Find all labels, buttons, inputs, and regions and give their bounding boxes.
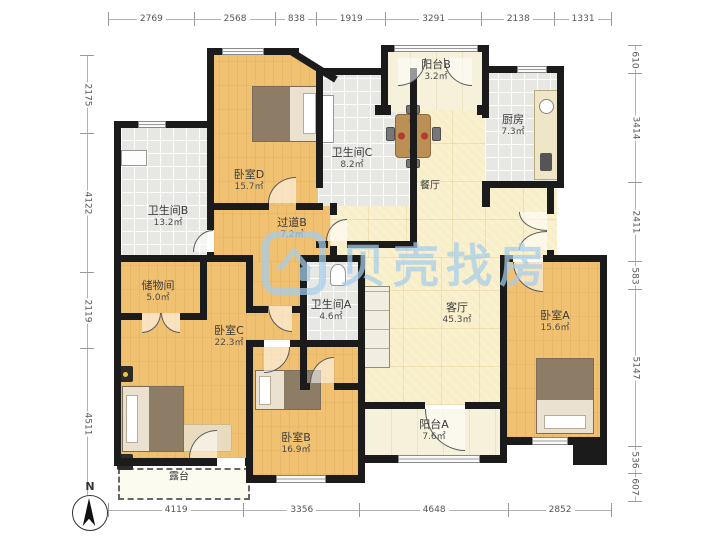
wall <box>114 458 217 466</box>
room-floor-hallway-b <box>214 206 330 262</box>
wall <box>200 255 207 320</box>
dining-chair-furniture <box>386 127 395 141</box>
room-label-dining: 餐厅 <box>420 180 440 193</box>
dimension-segment: 2769 <box>108 12 194 26</box>
window <box>532 437 568 445</box>
room-label-bathroom-a: 卫生间A4.6㎡ <box>311 298 352 324</box>
dimension-segment: 2852 <box>508 503 612 517</box>
wall <box>347 241 413 248</box>
window <box>398 455 480 463</box>
wall <box>358 402 425 409</box>
dimension-label: 3356 <box>287 505 316 515</box>
dimension-label: 4648 <box>420 505 449 515</box>
compass-north-label: N <box>68 480 112 493</box>
dimension-label: 2119 <box>82 298 92 323</box>
room-label-hallway-b: 过道B7.2㎡ <box>277 216 307 242</box>
dimension-label: 2175 <box>82 82 92 107</box>
wall <box>547 181 554 214</box>
wall <box>326 475 365 483</box>
room-name: 厨房 <box>501 113 524 127</box>
window <box>394 45 478 52</box>
wall <box>573 437 607 465</box>
double-bed-furniture <box>252 86 320 142</box>
room-area: 45.3㎡ <box>442 315 471 327</box>
floor-plan-canvas: 贝壳找房 N 卧室D15.7㎡卫生间C8.2㎡阳台B3.2㎡厨房7.3㎡餐厅过道… <box>0 0 720 540</box>
room-area: 13.2㎡ <box>148 218 189 230</box>
dimension-label: 5147 <box>630 356 640 381</box>
room-label-bedroom-a: 卧室A15.6㎡ <box>540 309 570 335</box>
room-label-living: 客厅45.3㎡ <box>442 301 471 327</box>
wall <box>316 68 323 188</box>
wall <box>246 258 253 306</box>
wall <box>207 203 269 210</box>
room-area: 22.3㎡ <box>214 338 244 350</box>
wall <box>290 340 365 347</box>
window <box>222 48 264 55</box>
dimension-segment: 1331 <box>554 12 612 26</box>
dimension-label: 3291 <box>419 14 448 24</box>
room-label-terrace: 露台 <box>169 471 189 484</box>
dimension-segment: 2411 <box>628 182 642 262</box>
wall <box>547 250 554 262</box>
wall <box>330 246 337 258</box>
wall <box>292 306 307 313</box>
sofa-furniture <box>362 286 390 368</box>
room-name: 卧室D <box>234 168 264 182</box>
dimension-label: 1919 <box>337 14 366 24</box>
dimension-label: 4122 <box>82 191 92 216</box>
dining-chair-furniture <box>432 127 441 141</box>
room-name: 卧室B <box>281 431 311 445</box>
dimension-segment: 3291 <box>385 12 481 26</box>
dimension-segment: 4119 <box>108 503 243 517</box>
wall <box>500 437 533 445</box>
room-name: 阳台A <box>419 418 449 432</box>
compass-needle-icon <box>77 498 101 526</box>
room-area: 15.6㎡ <box>540 323 570 335</box>
room-name: 露台 <box>169 471 189 484</box>
room-name: 卫生间B <box>148 204 189 218</box>
room-name: 餐厅 <box>420 180 440 193</box>
dimension-label: 4119 <box>162 505 191 515</box>
room-label-storage: 储物间5.0㎡ <box>142 279 175 305</box>
room-label-bedroom-b: 卧室B16.9㎡ <box>281 431 311 457</box>
room-area: 3.2㎡ <box>421 72 451 84</box>
room-area: 7.2㎡ <box>277 230 307 242</box>
dimension-label: 3414 <box>630 116 640 141</box>
wall <box>114 121 121 465</box>
room-label-bathroom-b: 卫生间B13.2㎡ <box>148 204 189 230</box>
dimension-segment: 1919 <box>316 12 385 26</box>
wall <box>358 455 400 463</box>
wall <box>296 203 323 210</box>
room-name: 卫生间C <box>332 146 373 160</box>
wall <box>246 475 280 483</box>
wall <box>482 181 490 207</box>
compass-dial <box>72 495 108 531</box>
wall <box>246 340 253 482</box>
dimension-segment: 5147 <box>628 289 642 447</box>
kitchen-counter-furniture <box>534 90 558 180</box>
dimension-segment: 2119 <box>80 272 94 349</box>
wall <box>410 68 417 248</box>
wall <box>114 313 142 320</box>
dimension-ruler-bottom: 4119335646482852 <box>108 503 612 517</box>
dimension-segment: 3414 <box>628 73 642 181</box>
wall <box>477 105 489 115</box>
dimension-segment: 610 <box>628 45 642 73</box>
window <box>138 121 166 128</box>
dimension-ruler-top: 276925688381919329121381331 <box>108 12 612 26</box>
room-label-balcony-b: 阳台B3.2㎡ <box>421 58 451 84</box>
room-name: 过道B <box>277 216 307 230</box>
dimension-label: 1331 <box>569 14 598 24</box>
room-area: 16.9㎡ <box>281 445 311 457</box>
room-floor-bathroom-b <box>121 128 207 258</box>
dimension-label: 610 <box>630 50 640 69</box>
wall <box>358 255 365 482</box>
dimension-segment: 3356 <box>243 503 359 517</box>
dimension-segment: 4511 <box>80 348 94 500</box>
dimension-label: 2568 <box>221 14 250 24</box>
wall <box>300 383 310 390</box>
room-label-bedroom-c: 卧室C22.3㎡ <box>214 324 244 350</box>
room-name: 客厅 <box>442 301 471 315</box>
dimension-label: 4511 <box>82 412 92 437</box>
window <box>276 475 326 483</box>
wall-shelf-furniture <box>121 150 147 166</box>
wall <box>114 255 210 262</box>
wall <box>330 203 337 215</box>
room-area: 7.6㎡ <box>419 432 449 444</box>
dimension-label: 2769 <box>137 14 166 24</box>
room-label-bathroom-c: 卫生间C8.2㎡ <box>332 146 373 172</box>
wall <box>500 255 507 463</box>
dimension-ruler-left: 2175412221194511 <box>80 55 94 500</box>
wall <box>246 340 264 347</box>
dimension-label: 536 <box>630 450 640 469</box>
compass: N <box>68 480 112 538</box>
dimension-segment: 838 <box>275 12 316 26</box>
wall <box>600 255 607 445</box>
dimension-segment: 583 <box>628 261 642 289</box>
toilet-furniture <box>330 264 346 286</box>
wall <box>246 306 268 313</box>
wall <box>375 105 391 115</box>
dimension-segment: 2175 <box>80 55 94 133</box>
dimension-label: 2411 <box>630 209 640 234</box>
dimension-segment: 2138 <box>481 12 554 26</box>
wall <box>180 313 202 320</box>
double-bed-furniture <box>122 386 184 452</box>
dimension-label: 838 <box>285 14 308 24</box>
dimension-segment: 2568 <box>194 12 276 26</box>
room-area: 8.2㎡ <box>332 160 373 172</box>
dimension-label: 2852 <box>546 505 575 515</box>
room-area: 7.3㎡ <box>501 127 524 139</box>
dimension-segment: 536 <box>628 446 642 472</box>
room-name: 阳台B <box>421 58 451 72</box>
dimension-segment: 607 <box>628 473 642 502</box>
dimension-segment: 4648 <box>359 503 508 517</box>
room-name: 卧室C <box>214 324 244 338</box>
room-name: 卧室A <box>540 309 570 323</box>
room-floor-hallway-b <box>253 262 300 306</box>
room-area: 4.6㎡ <box>311 312 352 324</box>
double-bed-furniture <box>536 358 594 434</box>
room-label-kitchen: 厨房7.3㎡ <box>501 113 524 139</box>
dimension-label: 2138 <box>504 14 533 24</box>
wall <box>316 241 328 248</box>
dimension-label: 607 <box>630 478 640 497</box>
window <box>517 66 547 73</box>
wall <box>334 383 365 390</box>
dimension-segment: 4122 <box>80 133 94 272</box>
dimension-ruler-right: 610341424115835147536607 <box>628 45 642 502</box>
wall <box>300 255 307 390</box>
wall <box>557 66 564 188</box>
room-area: 5.0㎡ <box>142 293 175 305</box>
room-name: 卫生间A <box>311 298 352 312</box>
room-area: 15.7㎡ <box>234 182 264 194</box>
dimension-label: 583 <box>630 266 640 285</box>
room-name: 储物间 <box>142 279 175 293</box>
wall <box>500 255 513 262</box>
wall <box>300 255 358 262</box>
room-label-balcony-a: 阳台A7.6㎡ <box>419 418 449 444</box>
room-label-bedroom-d: 卧室D15.7㎡ <box>234 168 264 194</box>
